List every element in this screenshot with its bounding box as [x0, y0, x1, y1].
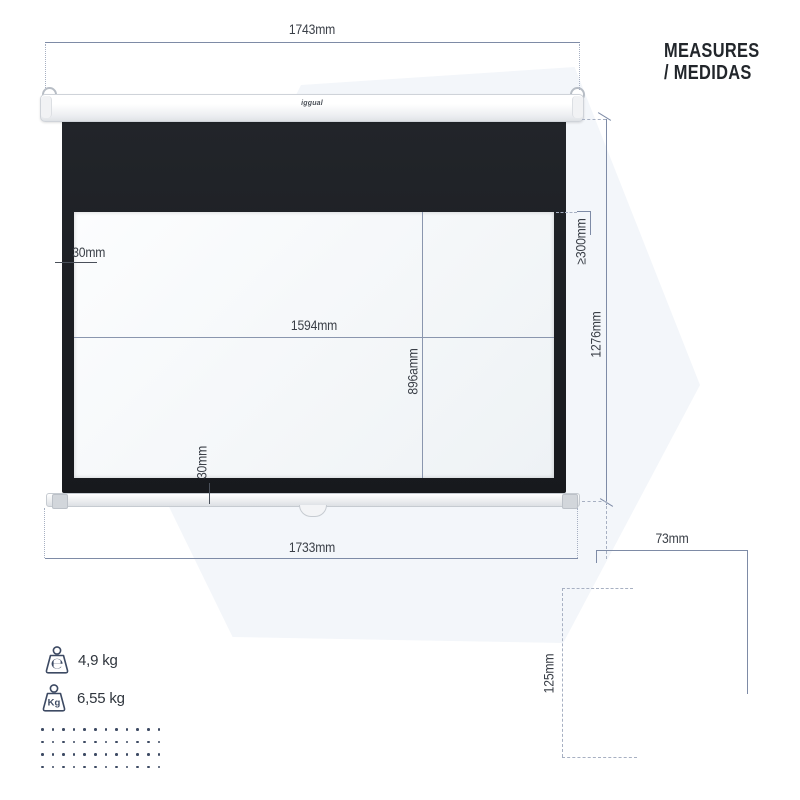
- dot: [52, 753, 55, 756]
- dim-bottom-ext-right: [577, 508, 578, 558]
- dim-bottom-width-label: 1733mm: [276, 540, 348, 555]
- dot: [73, 728, 76, 731]
- kg-weight-icon: Kg: [40, 683, 68, 713]
- dim-bottom-width-line: [45, 558, 578, 559]
- dim-top-width-line: [45, 42, 580, 43]
- dim-case-height-ext-top: [562, 588, 633, 589]
- kg-weight-symbol: Kg: [48, 698, 61, 709]
- dim-total-height-label: 1276mm: [589, 308, 604, 362]
- dim-left-border-tick: [55, 262, 97, 263]
- dot: [105, 741, 108, 744]
- dot: [147, 741, 150, 744]
- title-line-1: MEASURES: [664, 40, 779, 62]
- dim-total-height-line: [606, 119, 607, 505]
- dim-left-border-label: 30mm: [72, 245, 112, 260]
- dot: [83, 753, 86, 756]
- dot: [94, 753, 97, 756]
- dot: [41, 753, 44, 756]
- dim-view-height-label: 896amm: [406, 345, 421, 399]
- dot: [94, 741, 97, 744]
- dot: [41, 728, 44, 731]
- dot: [83, 766, 86, 769]
- dot: [147, 753, 150, 756]
- dot: [126, 766, 129, 769]
- dot: [158, 766, 161, 769]
- dot: [147, 766, 150, 769]
- gross-weight-value: 6,55 kg: [77, 690, 125, 707]
- housing-endcap-left: [41, 96, 52, 118]
- net-weight-icon: ℮: [43, 645, 71, 675]
- dot: [158, 741, 161, 744]
- dot: [147, 728, 150, 731]
- dot: [105, 728, 108, 731]
- dim-black-drop-label: ≥300mm: [574, 215, 589, 269]
- dot: [136, 766, 139, 769]
- dot: [115, 766, 118, 769]
- dim-top-width-label: 1743mm: [276, 22, 348, 37]
- dot: [136, 741, 139, 744]
- dot: [158, 728, 161, 731]
- dot: [73, 741, 76, 744]
- page-title: MEASURES / MEDIDAS: [664, 40, 779, 84]
- dot: [83, 741, 86, 744]
- dot: [83, 728, 86, 731]
- dot: [73, 753, 76, 756]
- dim-case-width-drop-left: [596, 550, 597, 563]
- brand-logo: iggual: [291, 100, 333, 107]
- dim-case-width-bracket: [596, 550, 748, 694]
- dot: [73, 766, 76, 769]
- dot: [52, 728, 55, 731]
- dot: [136, 728, 139, 731]
- dot: [126, 753, 129, 756]
- slat-endcap-right: [562, 494, 578, 509]
- dot: [105, 766, 108, 769]
- dim-view-width-line: [74, 337, 554, 338]
- dot: [62, 728, 65, 731]
- housing-endcap-right: [572, 96, 583, 118]
- dim-bottom-border-tick: [209, 483, 210, 504]
- dim-case-height-ext-bottom: [562, 757, 637, 758]
- product-measures-diagram: 1743mm iggual 1594mm 896amm 30mm 30mm 17…: [0, 0, 800, 800]
- dot: [105, 753, 108, 756]
- dot: [158, 753, 161, 756]
- dot: [62, 753, 65, 756]
- dot: [115, 741, 118, 744]
- dot: [115, 753, 118, 756]
- dim-drop-top-connector: [582, 119, 606, 120]
- dim-view-width-label: 1594mm: [278, 318, 350, 333]
- dot: [52, 741, 55, 744]
- dot: [41, 766, 44, 769]
- dim-case-height-label: 125mm: [542, 647, 557, 701]
- net-weight-value: 4,9 kg: [78, 652, 118, 669]
- dim-top-ext-right: [579, 44, 580, 90]
- dim-case-width-label: 73mm: [645, 531, 699, 546]
- title-line-2: / MEDIDAS: [664, 62, 779, 84]
- screen-viewing-area: [74, 212, 554, 478]
- screen-housing-bar: [40, 94, 584, 122]
- dim-drop-dashed-line: [556, 212, 577, 213]
- dot: [94, 766, 97, 769]
- dot: [136, 753, 139, 756]
- detail-connector-h: [582, 501, 607, 502]
- dot: [52, 766, 55, 769]
- dot: [115, 728, 118, 731]
- dim-bottom-ext-left: [44, 508, 45, 558]
- dot-grid-decoration: [41, 728, 171, 772]
- dot: [41, 741, 44, 744]
- dim-bottom-border-label: 30mm: [195, 436, 210, 490]
- net-weight-symbol: ℮: [51, 655, 64, 673]
- dim-view-height-line: [422, 212, 423, 478]
- slat-endcap-left: [52, 494, 68, 509]
- dot: [94, 728, 97, 731]
- dim-top-ext-left: [45, 44, 46, 88]
- dim-case-height-line: [562, 588, 563, 757]
- dot: [126, 728, 129, 731]
- dot: [62, 766, 65, 769]
- dot: [126, 741, 129, 744]
- dot: [62, 741, 65, 744]
